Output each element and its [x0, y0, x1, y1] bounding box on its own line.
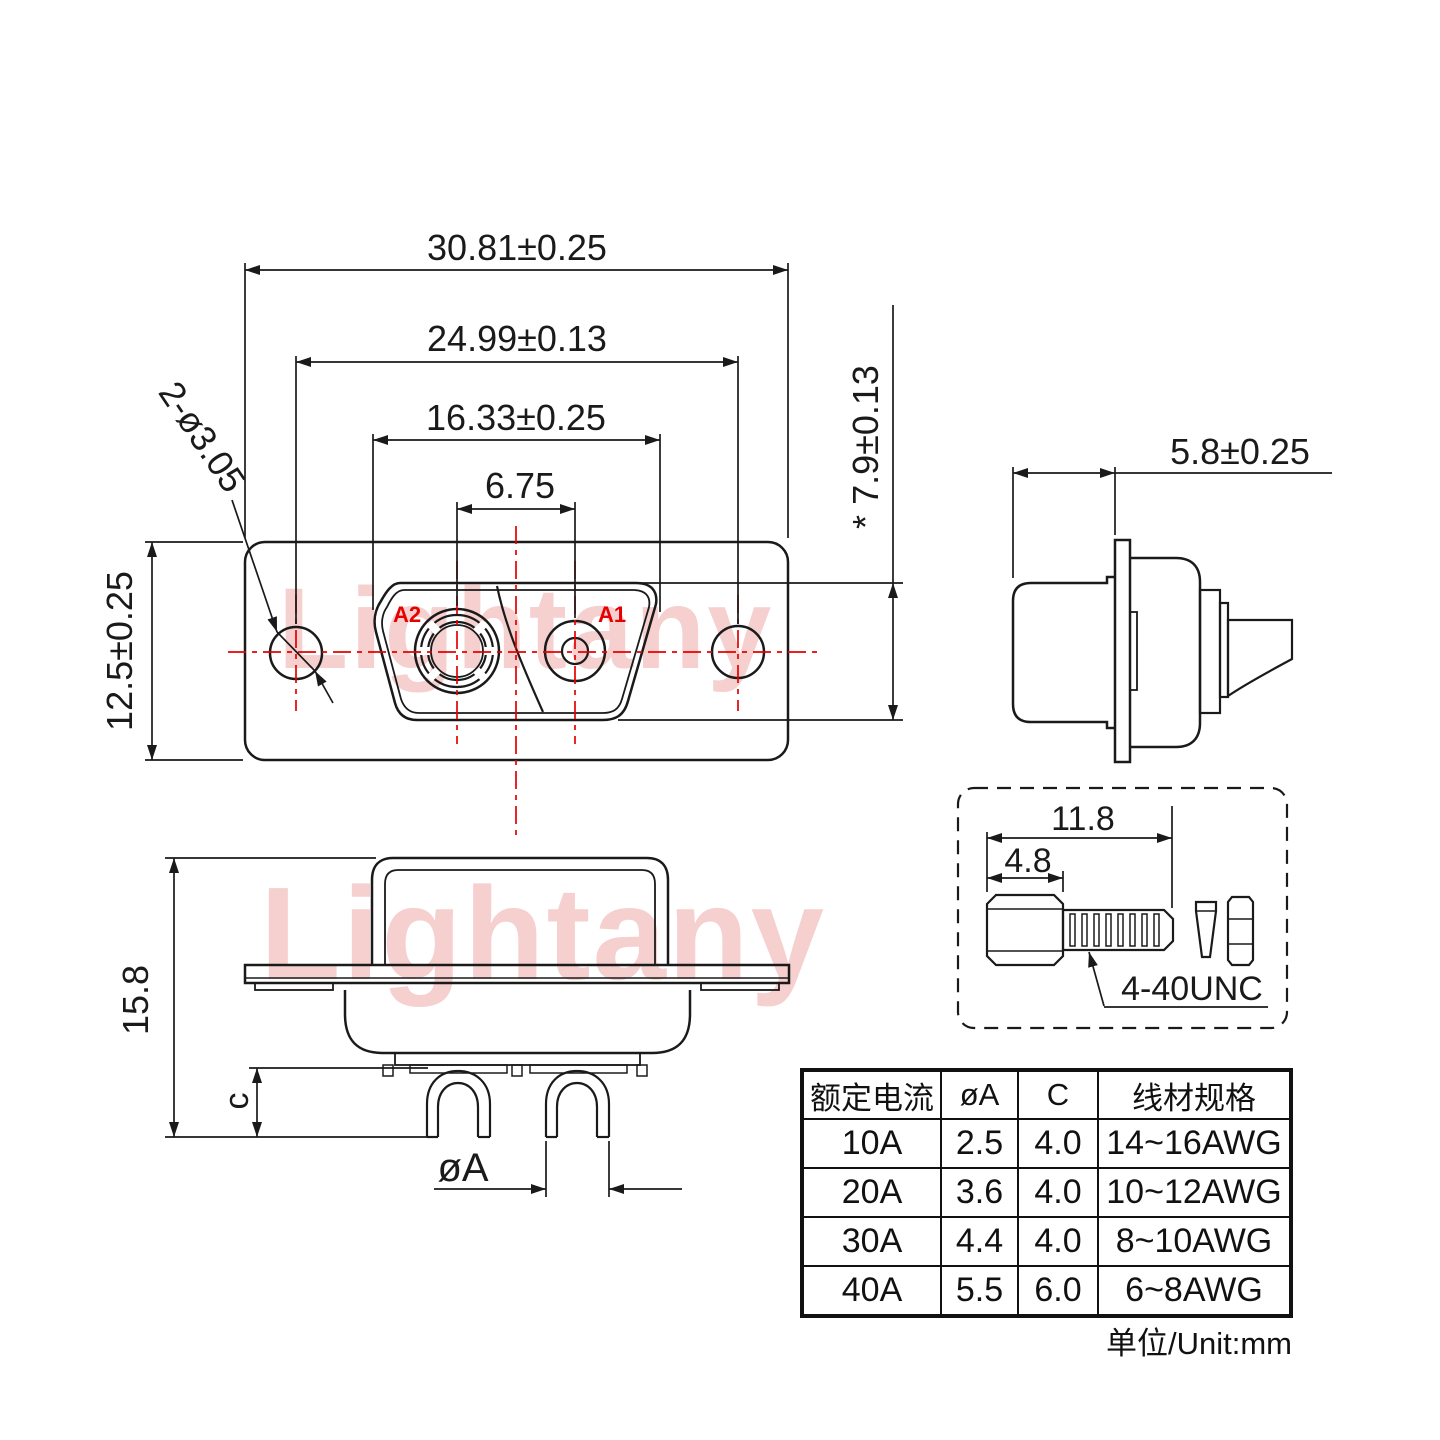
dim-total-height: 15.8 [115, 965, 156, 1035]
table-row: 40A 5.5 6.0 6~8AWG [802, 1266, 1291, 1316]
side-dimensions [1013, 467, 1332, 578]
solder-cup-left [427, 1071, 490, 1137]
dim-depth: 5.8±0.25 [1170, 431, 1310, 472]
dim-outer-width: 30.81±0.25 [427, 227, 607, 268]
screw-threads [1070, 914, 1159, 946]
screw-head [987, 895, 1063, 965]
dim-hole-pitch: 24.99±0.13 [427, 318, 607, 359]
drawing-canvas: Lightany Lightany [0, 0, 1440, 1440]
dim-cup-diameter: øA [437, 1146, 488, 1190]
dim-cup-depth: c [218, 1093, 256, 1110]
cavity-divider [497, 586, 543, 712]
dim-screw-length: 11.8 [1051, 800, 1115, 838]
label-a1: A1 [598, 602, 626, 627]
side-body [1130, 558, 1200, 747]
hex-nut [1228, 897, 1253, 965]
dim-contact-pitch: 6.75 [485, 465, 555, 506]
unit-note: 单位/Unit:mm [1000, 1318, 1292, 1363]
bottom-view: 15.8 c øA [115, 858, 789, 1197]
side-step2 [1220, 603, 1228, 697]
screw-detail: 11.8 4.8 4-40UNC [958, 788, 1287, 1028]
hood-outer [372, 858, 668, 965]
flange-bar [245, 965, 789, 983]
dim-mount-holes: 2-ø3.05 [151, 374, 254, 500]
slab-tab-right [637, 1065, 647, 1076]
bottom-dimensions [165, 858, 682, 1197]
label-thread-spec: 4-40UNC [1121, 970, 1263, 1008]
col-header-c: C [1018, 1070, 1098, 1119]
table-header-row: 额定电流 øA C 线材规格 [802, 1070, 1291, 1119]
side-view: 5.8±0.25 [1013, 431, 1332, 762]
spec-table: 额定电流 øA C 线材规格 10A 2.5 4.0 14~16AWG 20A … [800, 1068, 1293, 1318]
side-cable-boot [1228, 620, 1292, 696]
table-row: 10A 2.5 4.0 14~16AWG [802, 1119, 1291, 1168]
front-view: 30.81±0.25 24.99±0.13 16.33±0.25 6.75 12… [99, 227, 903, 838]
insulator-slab [395, 1053, 640, 1065]
side-shell [1013, 577, 1115, 728]
table-row: 30A 4.4 4.0 8~10AWG [802, 1217, 1291, 1266]
slab-tab-mid [512, 1065, 522, 1076]
side-flange [1115, 540, 1130, 762]
label-a2: A2 [393, 602, 421, 627]
hood-inner [385, 870, 655, 965]
slab-tab-left [383, 1065, 393, 1076]
table-row: 20A 3.6 4.0 10~12AWG [802, 1168, 1291, 1217]
dim-plate-height: 12.5±0.25 [99, 571, 140, 731]
col-header-wire: 线材规格 [1098, 1070, 1291, 1119]
solder-cup-right [546, 1071, 609, 1137]
bottom-body [345, 990, 690, 1053]
col-header-dia: øA [941, 1070, 1018, 1119]
dim-insert-height: * 7.9±0.13 [845, 365, 886, 529]
col-header-current: 额定电流 [802, 1070, 941, 1119]
dim-insert-width: 16.33±0.25 [426, 397, 606, 438]
side-step1 [1200, 590, 1220, 713]
centerlines [228, 526, 818, 838]
dim-screw-head: 4.8 [1004, 842, 1051, 880]
